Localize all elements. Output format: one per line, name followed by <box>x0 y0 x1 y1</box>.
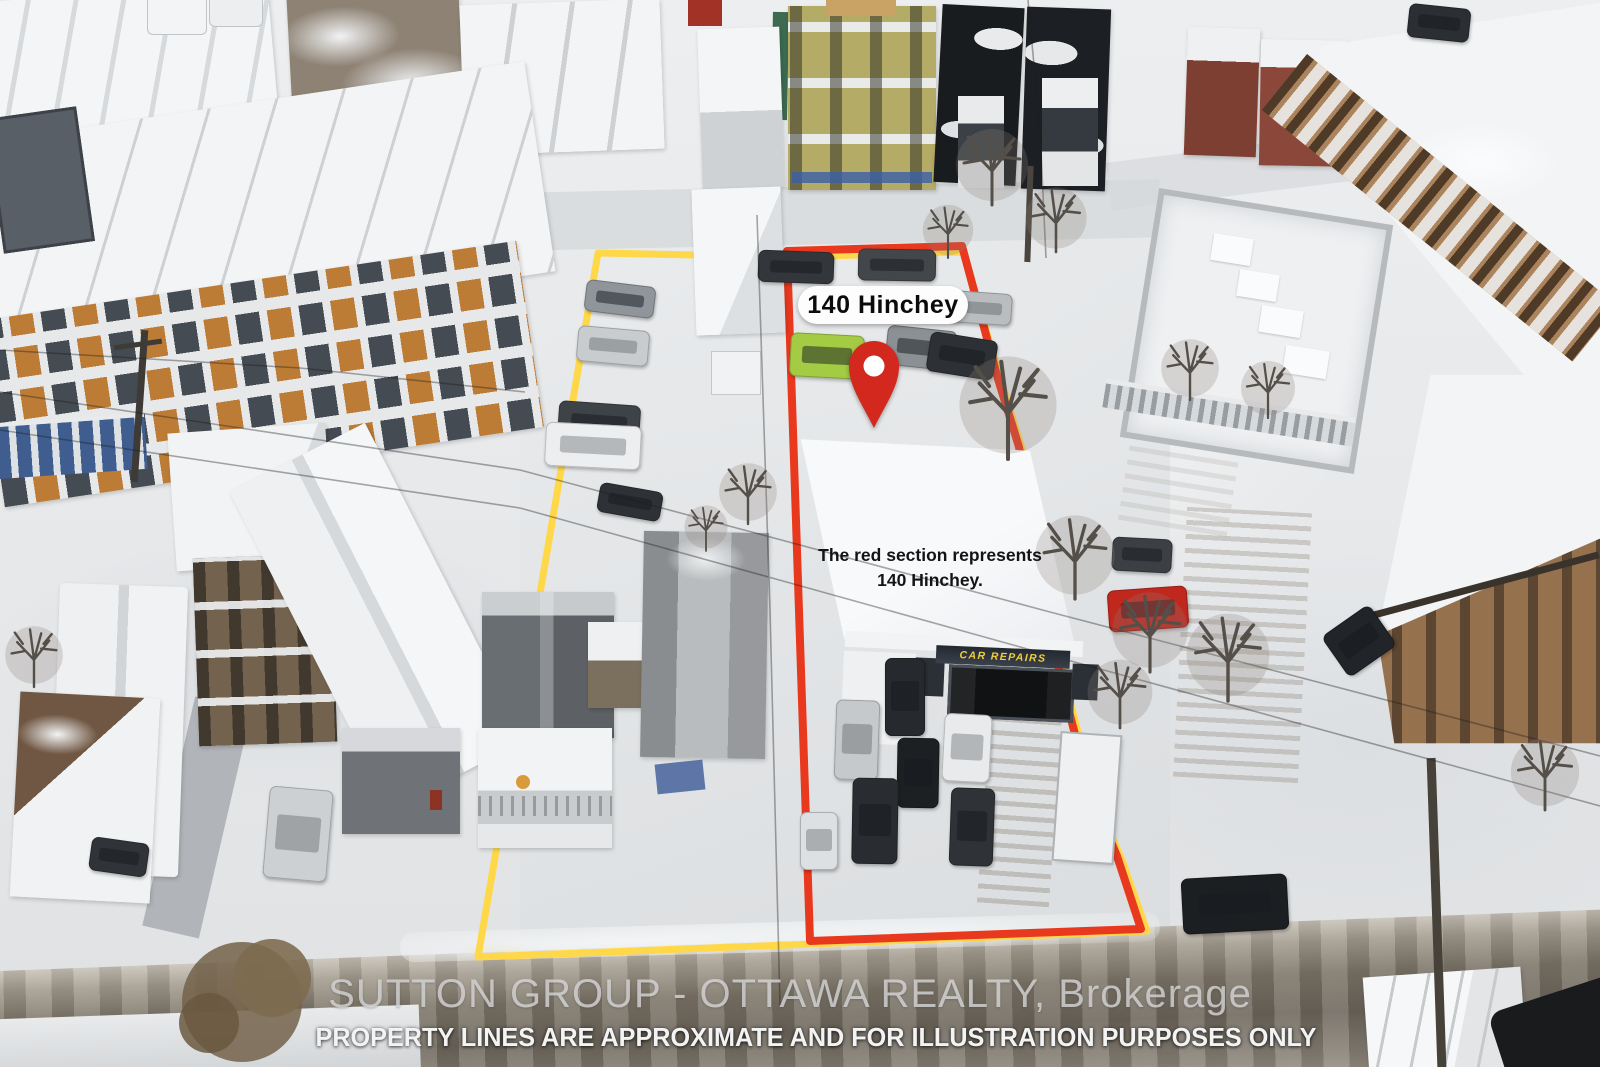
blue-tarp <box>792 172 932 183</box>
construction-building <box>788 6 936 190</box>
map-pin <box>846 332 908 432</box>
townhome-front-1 <box>958 96 1004 188</box>
car-on-street <box>1181 873 1290 934</box>
car <box>1406 3 1471 43</box>
address-label: 140 Hinchey <box>798 286 968 324</box>
parked-car <box>834 699 881 780</box>
car <box>1111 536 1173 573</box>
note-line-2: 140 Hinchey. <box>800 568 1060 593</box>
porch-house <box>478 728 612 848</box>
parked-car <box>851 778 898 865</box>
car <box>576 325 651 367</box>
car <box>757 250 834 285</box>
small-hut <box>712 352 760 394</box>
red-container <box>688 0 722 26</box>
parked-car <box>800 812 838 870</box>
brokerage-watermark: SUTTON GROUP - OTTAWA REALTY, Brokerage <box>0 972 1590 1017</box>
parked-car <box>949 787 996 866</box>
car <box>858 248 937 281</box>
trailer <box>1054 733 1121 863</box>
gable-house-top <box>697 27 785 190</box>
parked-car <box>885 658 925 736</box>
white-van <box>148 0 206 34</box>
red-section-note: The red section represents 140 Hinchey. <box>800 543 1060 594</box>
recycling-bins-row <box>0 413 148 479</box>
disclaimer-text: PROPERTY LINES ARE APPROXIMATE AND FOR I… <box>40 1022 1592 1053</box>
blue-tarp-clutter <box>655 760 706 795</box>
townhome-front-2 <box>1042 78 1098 186</box>
plywood-roof <box>826 0 896 16</box>
porch-item <box>516 775 530 789</box>
map-pin-body <box>849 341 899 428</box>
garage-sign-text: CAR REPAIRS <box>959 649 1046 665</box>
parked-car <box>941 713 992 783</box>
dark-house-left <box>342 728 460 834</box>
red-door <box>430 790 442 810</box>
center-left-house <box>640 531 769 759</box>
parked-car <box>896 738 939 809</box>
white-van-2 <box>210 0 262 26</box>
address-label-text: 140 Hinchey <box>807 291 958 320</box>
red-car <box>1107 585 1190 632</box>
parked-car <box>262 785 334 882</box>
muddy-lane <box>1173 507 1312 783</box>
aerial-photo: CAR REPAIRS <box>0 0 1600 1067</box>
note-line-1: The red section represents <box>800 543 1060 568</box>
map-pin-hole <box>864 356 885 377</box>
brick-house-1 <box>1184 27 1260 157</box>
garage-window-right <box>1071 663 1099 700</box>
white-truck <box>544 422 642 471</box>
right-building <box>1358 375 1600 747</box>
